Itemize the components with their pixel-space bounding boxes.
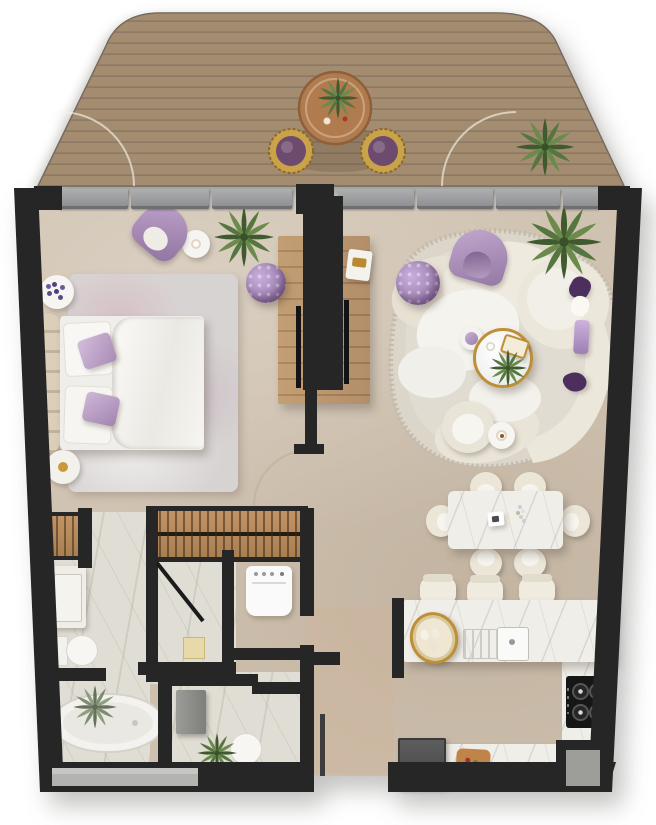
bedroom-pouf-purple (246, 263, 286, 303)
food-items (465, 758, 470, 763)
toilet-bowl (66, 635, 98, 666)
burner-4 (589, 704, 606, 721)
tray-gold-item (352, 257, 367, 268)
sink-basin (497, 627, 529, 661)
vanity-basin (54, 574, 82, 622)
lilac-throw (573, 320, 590, 355)
bedroom-plant (212, 205, 276, 269)
kitchen-counter-bottom (446, 744, 566, 786)
console-decor-tray (345, 249, 372, 282)
toilet-bathroom (56, 634, 98, 666)
faucet (509, 639, 515, 645)
apartment-floor-plan (0, 0, 656, 825)
gas-cooktop (566, 676, 606, 728)
duvet (112, 317, 204, 449)
refrigerator-cabinet (398, 738, 446, 788)
lavender-decor-plate (40, 275, 74, 309)
living-armchair-cream (442, 401, 494, 453)
dining-table (448, 491, 563, 549)
drainboard (463, 629, 499, 659)
flower-stem (518, 505, 522, 509)
headboard-bench (38, 313, 60, 453)
burner-2 (589, 683, 606, 700)
glass-segment-1 (58, 189, 128, 209)
dining-chair-bottom-1 (470, 548, 502, 578)
gold-faucet (49, 590, 53, 592)
stool-back (470, 575, 500, 583)
glass-segment-3 (212, 189, 292, 209)
coffee (500, 434, 504, 438)
palm-plant (524, 202, 604, 282)
washer-lid-line (252, 582, 286, 584)
wc-plant (196, 732, 238, 774)
floor-plan-stage (0, 0, 656, 825)
glass-segment-4 (338, 189, 414, 209)
living-side-table (488, 422, 515, 449)
washer-controls (254, 572, 258, 576)
food-board (455, 748, 491, 783)
cooktop-knobs (567, 688, 569, 714)
walk-in-wardrobe (146, 506, 308, 562)
washing-machine (246, 566, 292, 616)
tray-eggs (419, 629, 430, 641)
living-pouf-purple (396, 261, 440, 305)
glass-segment-6 (496, 189, 560, 209)
glass-segment-7 (563, 189, 599, 209)
stool-back (522, 574, 552, 582)
tv-screen-bedroom-side (296, 306, 301, 388)
lavender-sprigs (54, 289, 59, 294)
glass-segment-2 (131, 189, 209, 209)
tub-drain (132, 720, 138, 726)
stool-back (423, 574, 453, 582)
glass-segment-5 (417, 189, 493, 209)
decor-plate (487, 511, 504, 527)
bath-vanity (48, 566, 86, 628)
shower-drain (183, 637, 205, 659)
coffee-cup (191, 239, 201, 249)
coffee-table-greenery (488, 348, 528, 388)
bath-plant (72, 684, 118, 730)
closet-small (36, 512, 92, 560)
dining-chair-right (560, 505, 590, 537)
tv-screen-living-side (344, 300, 349, 384)
wc-vanity (176, 690, 206, 734)
plate-glyph (492, 516, 500, 523)
burner-3 (572, 704, 589, 721)
gold-cup (58, 462, 68, 472)
burner-1 (572, 683, 589, 700)
round-nightstand (46, 450, 80, 484)
